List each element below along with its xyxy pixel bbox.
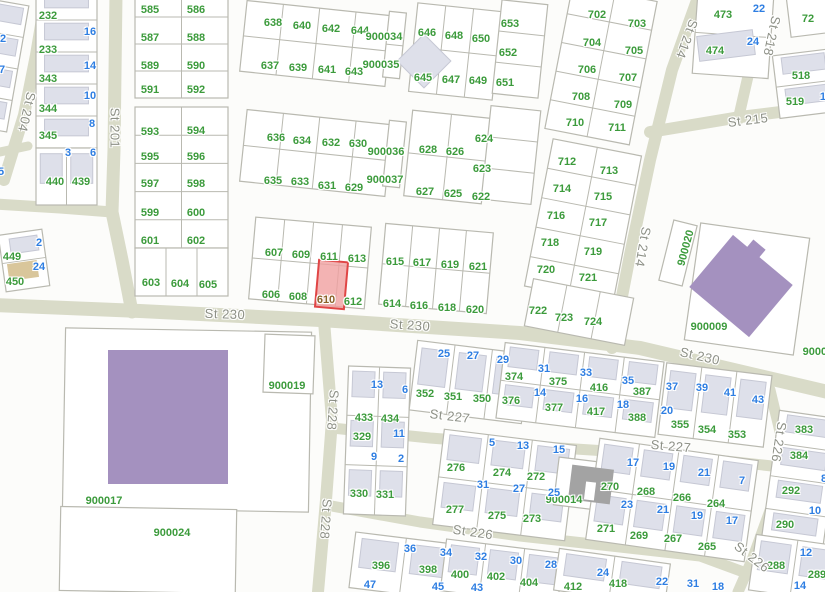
map-canvas[interactable] — [0, 0, 825, 592]
building — [680, 455, 712, 485]
building — [45, 23, 89, 40]
building — [701, 375, 731, 415]
building — [666, 371, 696, 411]
parcel-outline — [481, 106, 541, 205]
parcel-outline — [263, 334, 315, 394]
building — [583, 394, 614, 417]
building — [548, 352, 579, 375]
building — [634, 500, 666, 530]
road — [112, 212, 132, 312]
parcel-block — [749, 534, 825, 592]
selected-parcel-highlight[interactable] — [315, 260, 348, 309]
building — [455, 353, 486, 392]
parcel-block — [263, 334, 315, 394]
building — [799, 547, 825, 580]
building — [491, 440, 526, 469]
building — [379, 471, 402, 497]
building — [45, 87, 89, 104]
building — [350, 420, 373, 446]
building — [720, 461, 752, 491]
road — [112, 0, 116, 212]
parcel-block — [379, 223, 494, 313]
building — [641, 450, 673, 480]
building — [45, 0, 89, 8]
parcel-block — [343, 366, 410, 516]
parcel-block — [135, 107, 228, 248]
highlight-layer — [315, 260, 348, 309]
building — [485, 488, 520, 517]
parcel-block — [404, 110, 491, 204]
building — [448, 545, 479, 575]
parcel-block — [586, 438, 759, 561]
building — [348, 470, 371, 496]
parcel-outline — [59, 506, 236, 592]
building — [622, 399, 653, 422]
road — [318, 321, 332, 592]
parcel-block — [36, 148, 97, 205]
building — [45, 119, 89, 136]
parcel-block — [492, 0, 548, 98]
building — [757, 541, 791, 574]
parcel-block — [59, 506, 236, 592]
parcel-block — [658, 363, 772, 447]
building — [713, 511, 745, 541]
building — [71, 154, 93, 184]
building — [383, 372, 406, 398]
parcel-block — [36, 0, 97, 148]
building — [673, 506, 705, 536]
building — [447, 435, 482, 464]
building — [45, 55, 89, 72]
building — [543, 390, 574, 413]
building — [736, 379, 766, 419]
parcel-block — [135, 0, 228, 98]
parcel-outline — [785, 0, 825, 37]
parcel-block — [481, 106, 541, 205]
parcel-block — [135, 248, 228, 296]
parcel-outline — [659, 220, 697, 286]
map-stage: 2322333433443454404394494505855865875885… — [0, 0, 825, 592]
parcel-block — [249, 217, 372, 309]
parcel-block — [440, 539, 563, 592]
parcel-block — [545, 0, 657, 145]
building — [359, 538, 399, 571]
building — [508, 347, 539, 370]
building — [526, 554, 557, 584]
parcel-block — [433, 429, 577, 540]
building — [503, 385, 534, 408]
building — [40, 154, 62, 184]
parcel-block — [761, 410, 825, 549]
building — [627, 362, 658, 385]
parcel-block — [240, 110, 393, 197]
building — [9, 235, 39, 254]
road — [0, 146, 28, 152]
parcel-block — [785, 0, 825, 37]
building — [441, 482, 476, 511]
building — [587, 357, 618, 380]
parcel-outline — [135, 248, 228, 296]
large-building — [108, 350, 228, 484]
parcel-outline — [492, 0, 548, 98]
building — [418, 348, 449, 387]
parcel-block — [659, 220, 697, 286]
parcel-block — [772, 49, 825, 119]
building — [352, 371, 375, 397]
building — [487, 550, 518, 580]
parcel-block — [240, 1, 393, 87]
building — [381, 421, 404, 447]
